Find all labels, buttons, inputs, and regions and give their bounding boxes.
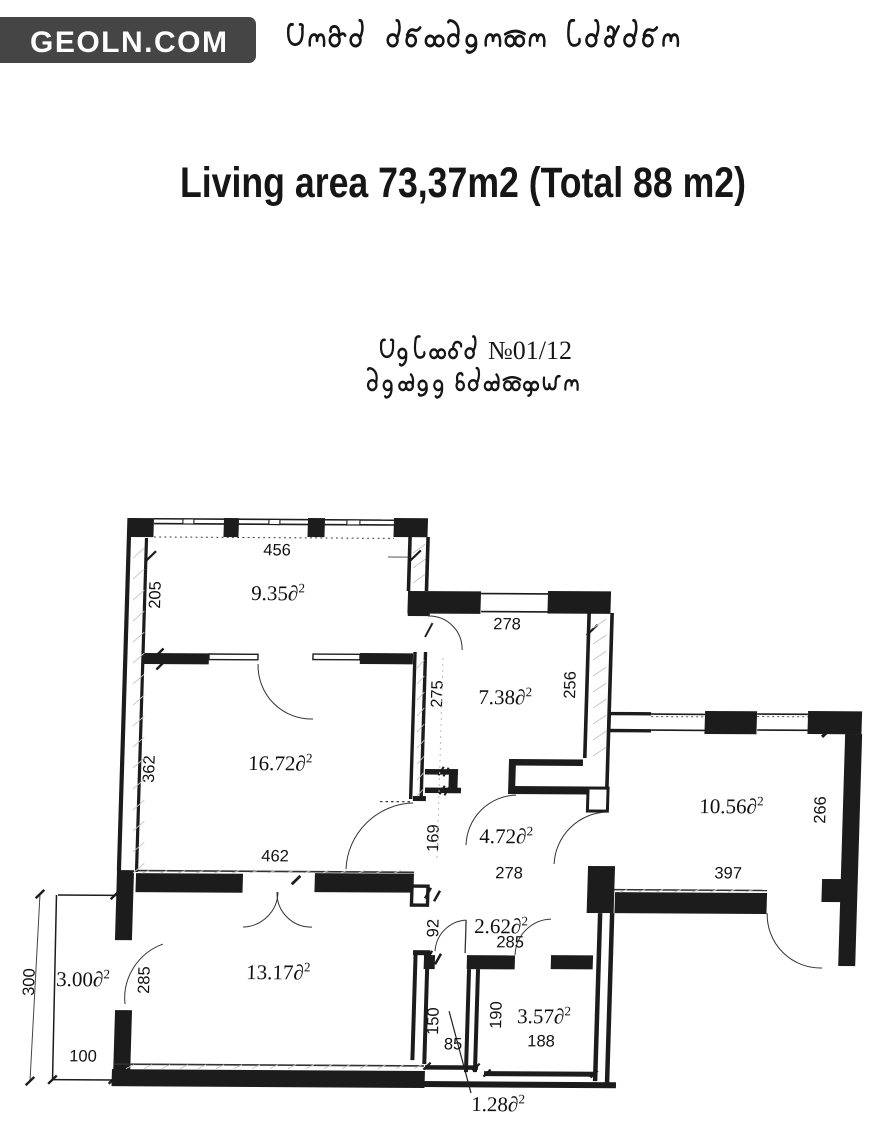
svg-text:4.72∂2: 4.72∂2 <box>479 823 533 848</box>
svg-text:16.72∂2: 16.72∂2 <box>248 750 313 775</box>
svg-text:300: 300 <box>20 968 39 996</box>
svg-text:2.62∂2: 2.62∂2 <box>474 913 528 938</box>
svg-text:85: 85 <box>444 1035 463 1053</box>
svg-text:275: 275 <box>428 680 447 708</box>
svg-text:266: 266 <box>811 796 830 824</box>
svg-text:9.35∂2: 9.35∂2 <box>251 580 305 605</box>
svg-text:190: 190 <box>487 1001 506 1029</box>
svg-text:150: 150 <box>424 1007 443 1035</box>
svg-text:10.56∂2: 10.56∂2 <box>699 793 764 818</box>
svg-text:169: 169 <box>424 824 443 852</box>
svg-text:1.28∂2: 1.28∂2 <box>471 1091 525 1116</box>
svg-text:3.57∂2: 3.57∂2 <box>517 1003 571 1028</box>
svg-text:205: 205 <box>146 581 165 609</box>
svg-text:3.00∂2: 3.00∂2 <box>56 966 110 991</box>
svg-text:92: 92 <box>424 919 443 937</box>
svg-text:188: 188 <box>527 1032 555 1050</box>
svg-text:GEOLN.COM: GEOLN.COM <box>30 26 229 59</box>
svg-text:397: 397 <box>714 864 742 882</box>
svg-text:278: 278 <box>495 864 523 882</box>
svg-text:278: 278 <box>493 615 521 633</box>
svg-text:7.38∂2: 7.38∂2 <box>478 684 532 709</box>
svg-text:13.17∂2: 13.17∂2 <box>246 959 311 984</box>
svg-text:№01/12: №01/12 <box>488 336 572 365</box>
svg-text:Living area 73,37m2 (Total 88: Living area 73,37m2 (Total 88 m2) <box>180 160 746 207</box>
svg-text:285: 285 <box>135 966 154 994</box>
svg-text:100: 100 <box>69 1047 97 1065</box>
svg-text:456: 456 <box>263 541 291 559</box>
svg-text:462: 462 <box>261 847 289 865</box>
svg-text:256: 256 <box>561 671 580 699</box>
